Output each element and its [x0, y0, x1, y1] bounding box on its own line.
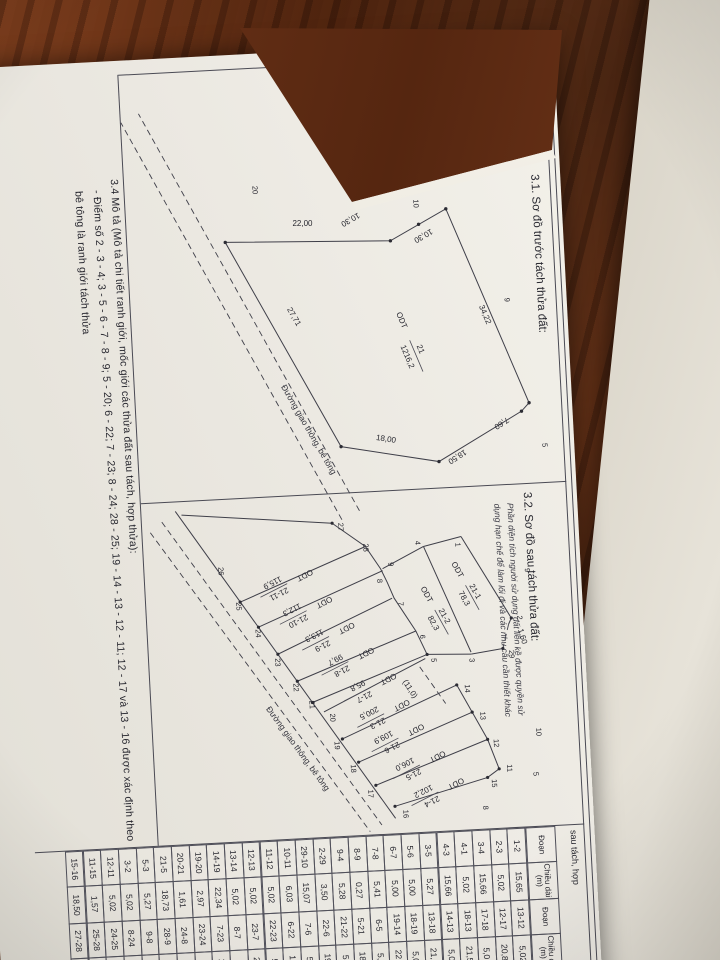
vertex-15: 15 [490, 779, 499, 788]
svg-text:ODT: ODT [392, 697, 411, 713]
table-cell: 5,47 [194, 951, 215, 960]
table-cell: 13-14 [224, 842, 245, 879]
vertex-10: 10 [411, 199, 420, 208]
table-cell: 1,61 [173, 880, 194, 919]
table-cell: 15,66 [438, 866, 459, 905]
parcel-21-boundary [224, 205, 532, 472]
vertex-12: 12 [492, 739, 501, 748]
svg-text:ODT: ODT [295, 567, 314, 583]
table-cell: 5,41 [367, 870, 388, 909]
table-header-cell: Đoạn [525, 826, 557, 864]
table-cell: 22,34 [389, 941, 410, 960]
vertex-8-ref: 8 [481, 805, 490, 810]
vertex-17: 17 [366, 789, 375, 798]
table-cell: 5,00 [385, 869, 406, 908]
parcel-21-area-label: ODT 21 1216,2 [386, 308, 433, 376]
table-cell: 18-13 [457, 902, 478, 939]
table-cell: 10-11 [277, 840, 298, 877]
table-cell: 5,02 [226, 877, 247, 916]
svg-text:78,3: 78,3 [456, 589, 472, 607]
table-cell: 23-24 [192, 916, 213, 953]
table-cell: 24-25 [104, 921, 125, 958]
table-cell: 5,02 [491, 863, 512, 902]
table-header-cell: Chiều dài (m) [531, 933, 563, 960]
table-cell: 5,02 [512, 934, 533, 960]
svg-text:ODT: ODT [337, 620, 356, 636]
table-cell: 28-9 [157, 918, 178, 955]
vertex-5: 5 [540, 443, 549, 448]
table-cell: 22-23 [263, 912, 284, 949]
table-cell: 8-24 [122, 920, 143, 957]
vertex-9b: 9 [386, 562, 395, 567]
table-cell: 5,02 [243, 876, 264, 915]
table-cell: 5,00 [371, 942, 392, 960]
dim-27-71: 27,71 [285, 306, 303, 328]
table-cell: 21,38 [123, 955, 144, 960]
table-cell: 6,03 [279, 875, 300, 914]
table-cell: 18,73 [155, 881, 176, 920]
lot-label-21-11: ODT21-11 115,9 [255, 560, 317, 606]
table-cell: 3-2 [118, 848, 139, 885]
table-cell: 2-3 [489, 828, 510, 865]
table-cell: 19,59 [282, 946, 303, 960]
svg-text:ODT: ODT [406, 722, 425, 738]
vertex-26: 26 [216, 567, 225, 576]
vertex-18: 18 [349, 764, 358, 773]
table-cell: 2-29 [312, 838, 333, 875]
table-cell: 5-21 [351, 908, 372, 945]
table-cell: 15,66 [473, 864, 494, 903]
vertex-3: 3 [467, 658, 476, 663]
table-cell: 14-19 [206, 843, 227, 880]
vertex-6: 6 [418, 634, 427, 639]
vertex-19: 19 [333, 741, 342, 750]
table-cell: 9-4 [330, 837, 351, 874]
document-paper: 3.1. Sơ đồ trước tách thửa đất: Đường gi… [0, 38, 604, 960]
table-cell: 14-13 [440, 903, 461, 940]
table-cell: 5,01 [406, 940, 427, 960]
svg-text:ODT: ODT [394, 311, 409, 330]
dim-11-0: (11,0) [401, 678, 420, 700]
vertex-14: 14 [463, 684, 472, 693]
table-cell: 4,96 [159, 953, 180, 960]
vertex-8b: 8 [375, 579, 384, 584]
vertex-21: 21 [307, 700, 316, 709]
table-cell: 5,00 [402, 868, 423, 907]
vertex-28: 28 [361, 543, 370, 552]
vertex-22: 22 [291, 683, 300, 692]
vertex-4: 4 [413, 541, 422, 546]
table-cell: 21-5 [153, 846, 174, 883]
vertex-2: 2 [515, 615, 524, 620]
table-cell: 1-2 [507, 828, 528, 865]
vertex-24: 24 [254, 629, 263, 638]
table-cell: 27-28 [68, 923, 89, 960]
table-cell: 20,83 [495, 935, 516, 960]
svg-text:ODT: ODT [449, 560, 465, 579]
table-cell: 8-9 [348, 836, 369, 873]
vertex-7: 7 [396, 602, 405, 607]
table-cell: 5,02 [442, 938, 463, 960]
table-cell: 5,02 [120, 883, 141, 922]
vertex-20b: 20 [328, 713, 337, 722]
dim-7-60: 7,60 [492, 415, 510, 431]
table-cell: 7-6 [298, 911, 319, 948]
table-header-cell: Đoạn [529, 898, 561, 936]
table-cell: 1,57 [84, 885, 105, 924]
table-cell: 5,05 [335, 944, 356, 960]
vertex-23: 23 [273, 658, 282, 667]
vertex-27: 27 [336, 523, 345, 532]
table-cell: 4-3 [436, 831, 457, 868]
table-cell: 20-21 [171, 845, 192, 882]
vertex-25: 25 [234, 602, 243, 611]
table-cell: 5,00 [265, 947, 286, 960]
table-cell: 6-7 [383, 834, 404, 871]
table-cell: 12-17 [493, 900, 514, 937]
table-cell: 2,97 [190, 879, 211, 918]
table-cell: 25-28 [86, 922, 107, 959]
table-header-cell: Chiều dài (m) [527, 861, 559, 901]
table-cell: 5,00 [300, 946, 321, 960]
table-cell: 15,65 [508, 862, 529, 901]
dim-10-30-b: 10,30 [412, 227, 434, 245]
table-cell: 15-16 [65, 851, 86, 888]
table-cell: 5,27 [137, 882, 158, 921]
vertex-11: 11 [505, 764, 514, 772]
dim-1-60: 1,60 [516, 628, 529, 646]
table-cell: 5,02 [102, 884, 123, 923]
svg-text:ODT: ODT [419, 585, 435, 604]
table-cell: 18,50 [67, 886, 88, 925]
table-cell: 22-6 [316, 910, 337, 947]
diagram-after-subdivision: Đường giao thông, bê tông [139, 481, 586, 843]
table-cell: 21-22 [334, 909, 355, 946]
table-cell: 5-6 [401, 833, 422, 870]
table-cell: 7-23 [210, 915, 231, 952]
table-cell: 5,2 [106, 956, 127, 960]
table-cell: 21,38 [176, 952, 197, 960]
table-cell: 11-12 [259, 841, 280, 878]
table-title-fragment: sau tách, hợp [568, 830, 581, 885]
road-label: Đường giao thông, bê tông [279, 383, 339, 477]
road-label: Đường giao thông, bê tông [264, 704, 332, 793]
svg-text:ODT: ODT [356, 645, 375, 661]
table-cell: 29-10 [295, 839, 316, 876]
table-cell: 17-18 [475, 901, 496, 938]
table-cell: 5,02 [261, 875, 282, 914]
table-cell: 12-13 [241, 841, 262, 878]
dim-34-22: 34,22 [477, 304, 493, 326]
svg-text:ODT: ODT [428, 749, 447, 765]
lot-label-21-1: ODT21-1 78,3 [442, 558, 487, 616]
table-cell: 5,02 [455, 865, 476, 904]
table-cell: 19,59 [318, 945, 339, 960]
table-cell: 7-8 [365, 835, 386, 872]
table-cell: 6-22 [281, 911, 302, 948]
table-cell: 5,41 [229, 949, 250, 960]
dim-10-30-a: 10,30 [339, 211, 361, 229]
table-cell: 11-15 [82, 850, 103, 887]
table-cell: 23-7 [245, 913, 266, 950]
diagram-before-subdivision: Đường giao thông, bê tông ODT 21 1216,2 … [116, 52, 568, 503]
svg-text:1216,2: 1216,2 [398, 344, 416, 371]
lot-label-21-2: ODT21-2 82,3 [412, 582, 457, 640]
table-cell: 5-3 [135, 847, 156, 884]
table-cell: 8-7 [228, 914, 249, 951]
table-cell: 21,59 [459, 937, 480, 960]
table-cell: 18-19 [404, 905, 425, 942]
table-cell: 0,27 [141, 954, 162, 960]
section-3-4-line3: bê tông là ranh giới tách thửa [72, 191, 92, 335]
table-cell: 20,45 [247, 948, 268, 960]
table-cell: 18,73 [353, 943, 374, 960]
table-cell: 5,27 [420, 867, 441, 906]
table-cell: 19-14 [387, 906, 408, 943]
table-cell: 5,28 [332, 872, 353, 911]
table-cell: 13-12 [510, 899, 531, 936]
table-cell: 6-5 [369, 907, 390, 944]
table-cell: 0,27 [349, 871, 370, 910]
photo-of-cadastral-document: 3.1. Sơ đồ trước tách thửa đất: Đường gi… [0, 0, 720, 960]
table-cell: 24-8 [175, 917, 196, 954]
table-cell: 13-18 [422, 904, 443, 941]
table-cell: 3-5 [418, 832, 439, 869]
table-cell: 20,45 [212, 950, 233, 960]
dim-18-00: 18,00 [375, 433, 397, 445]
vertex-9-ref: 9 [523, 568, 532, 573]
vertex-10-ref: 10 [534, 727, 543, 736]
dim-22-00: 22,00 [292, 219, 313, 228]
table-cell: 5,01 [477, 936, 498, 960]
dim-11-0-line [420, 666, 446, 705]
table-cell: 22,34 [208, 878, 229, 917]
svg-text:21: 21 [415, 343, 427, 355]
svg-text:82,3: 82,3 [426, 614, 442, 632]
table-cell: 9-8 [139, 919, 160, 956]
vertex-5b: 5 [429, 658, 438, 663]
table-cell: 21,59 [424, 939, 445, 960]
table-cell: 19-20 [188, 844, 209, 881]
table-cell: 15,07 [296, 874, 317, 913]
vertex-13: 13 [478, 711, 487, 720]
rear-boundary [332, 519, 427, 659]
vertex-5-ref: 5 [531, 772, 540, 777]
vertex-20: 20 [250, 186, 259, 195]
table-cell: 12-11 [100, 849, 121, 886]
vertex-9: 9 [503, 298, 512, 303]
table-cell: 3,50 [314, 873, 335, 912]
road-dashed-line-2 [121, 112, 342, 530]
table-cell: 4-1 [454, 830, 475, 867]
table-cell: 21 [88, 957, 109, 960]
vertex-29: 29 [507, 650, 516, 659]
table-cell: 3-4 [471, 829, 492, 866]
vertex-16: 16 [401, 810, 410, 819]
vertex-1: 1 [453, 542, 462, 547]
